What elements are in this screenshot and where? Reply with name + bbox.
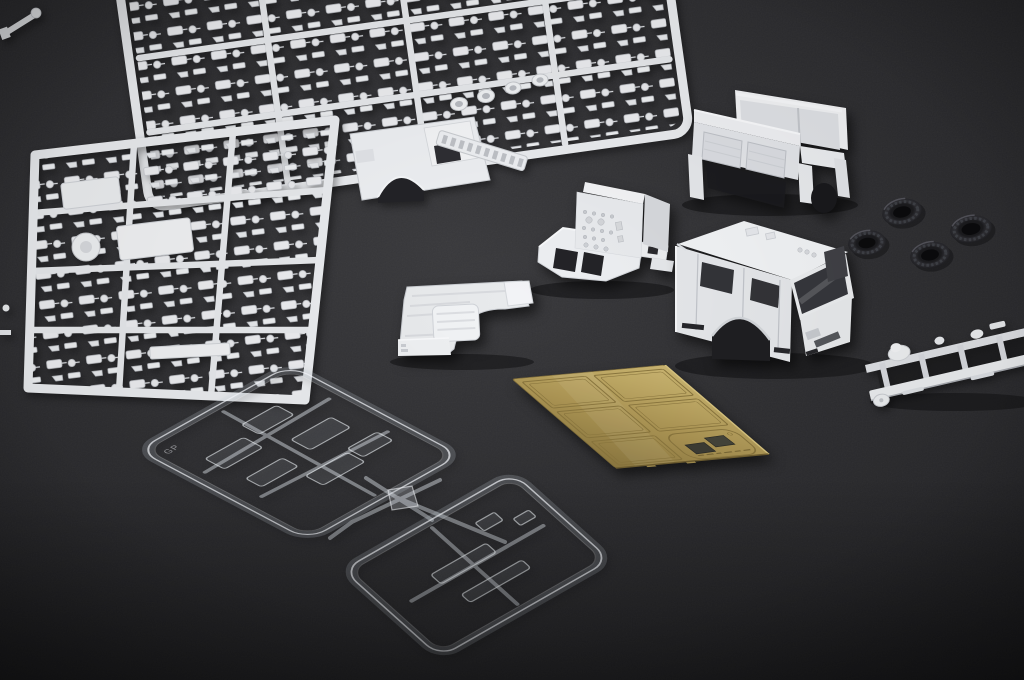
bottom-shade-overlay bbox=[0, 0, 1024, 680]
photo-canvas: GP bbox=[0, 0, 1024, 680]
photo-model-kit: GP bbox=[0, 0, 1024, 680]
